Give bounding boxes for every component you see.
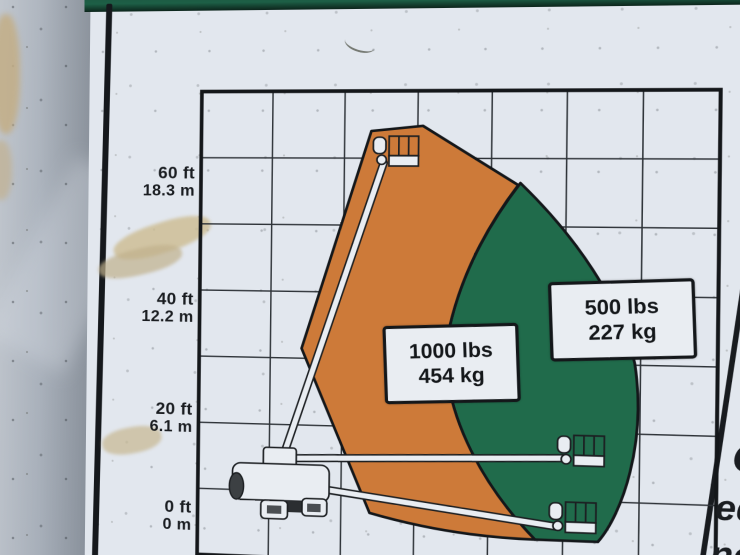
scratch-mark [342,31,377,56]
right-panel-text-fragment: equip [715,488,740,533]
wheel-hub [267,505,281,514]
y-axis-label-20ft: 20 ft 6.1 m [88,398,193,437]
right-panel-text-fragment: Occ [732,437,740,484]
load-chart-placard: 1000 lbs 454 kg 500 lbs 227 kg 60 ft 18.… [84,0,740,555]
photo-of-load-chart-placard: 1000 lbs 454 kg 500 lbs 227 kg 60 ft 18.… [0,0,740,555]
y-axis-label-0ft: 0 ft 0 m [87,495,192,535]
counterweight-endcap [229,473,244,500]
capacity-label-1000lbs: 1000 lbs 454 kg [382,323,521,404]
capacity-kg: 227 kg [588,319,657,346]
capacity-lbs: 500 lbs [584,294,659,321]
right-panel-text-fragment: not ex [710,534,740,555]
placard-top-green-bar [84,0,740,12]
capacity-lbs: 1000 lbs [409,338,494,365]
wheel-hub [307,504,321,513]
capacity-label-500lbs: 500 lbs 227 kg [548,278,697,361]
capacity-kg: 454 kg [418,363,485,389]
y-axis-label-40ft: 40 ft 12.2 m [89,289,194,327]
placard-left-border-line [90,4,113,555]
y-axis-label-60ft: 60 ft 18.3 m [90,164,195,201]
